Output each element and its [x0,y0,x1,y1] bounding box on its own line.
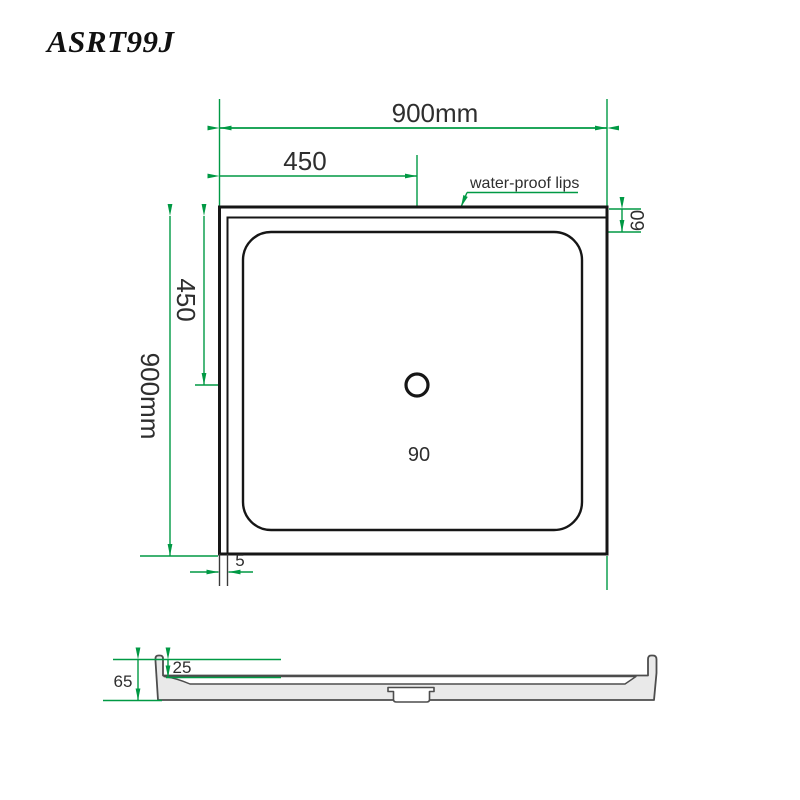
dim-half-width-label: 450 [283,146,326,176]
drain-circle [406,374,428,396]
leader-arrow-line [461,193,467,208]
dim-half-height-label: 450 [171,278,201,321]
product-code: ASRT99J [47,24,175,60]
dim-width-label: 900mm [392,98,479,128]
drawing-canvas: 900mm 450 water-proof lips 60 450 900mm … [0,0,800,800]
technical-drawing-page: ASRT99J [0,0,800,800]
section-drain-recess [388,688,434,703]
dim-drain-label: 90 [408,444,430,466]
dim-section-height-label: 65 [114,672,133,691]
dim-lip-thickness-label: 5 [235,551,244,570]
dim-section-depth-label: 25 [173,658,192,677]
dim-height-label: 900mm [135,353,165,440]
waterproof-lips-note: water-proof lips [469,175,579,192]
dim-rim-label: 60 [628,210,649,231]
